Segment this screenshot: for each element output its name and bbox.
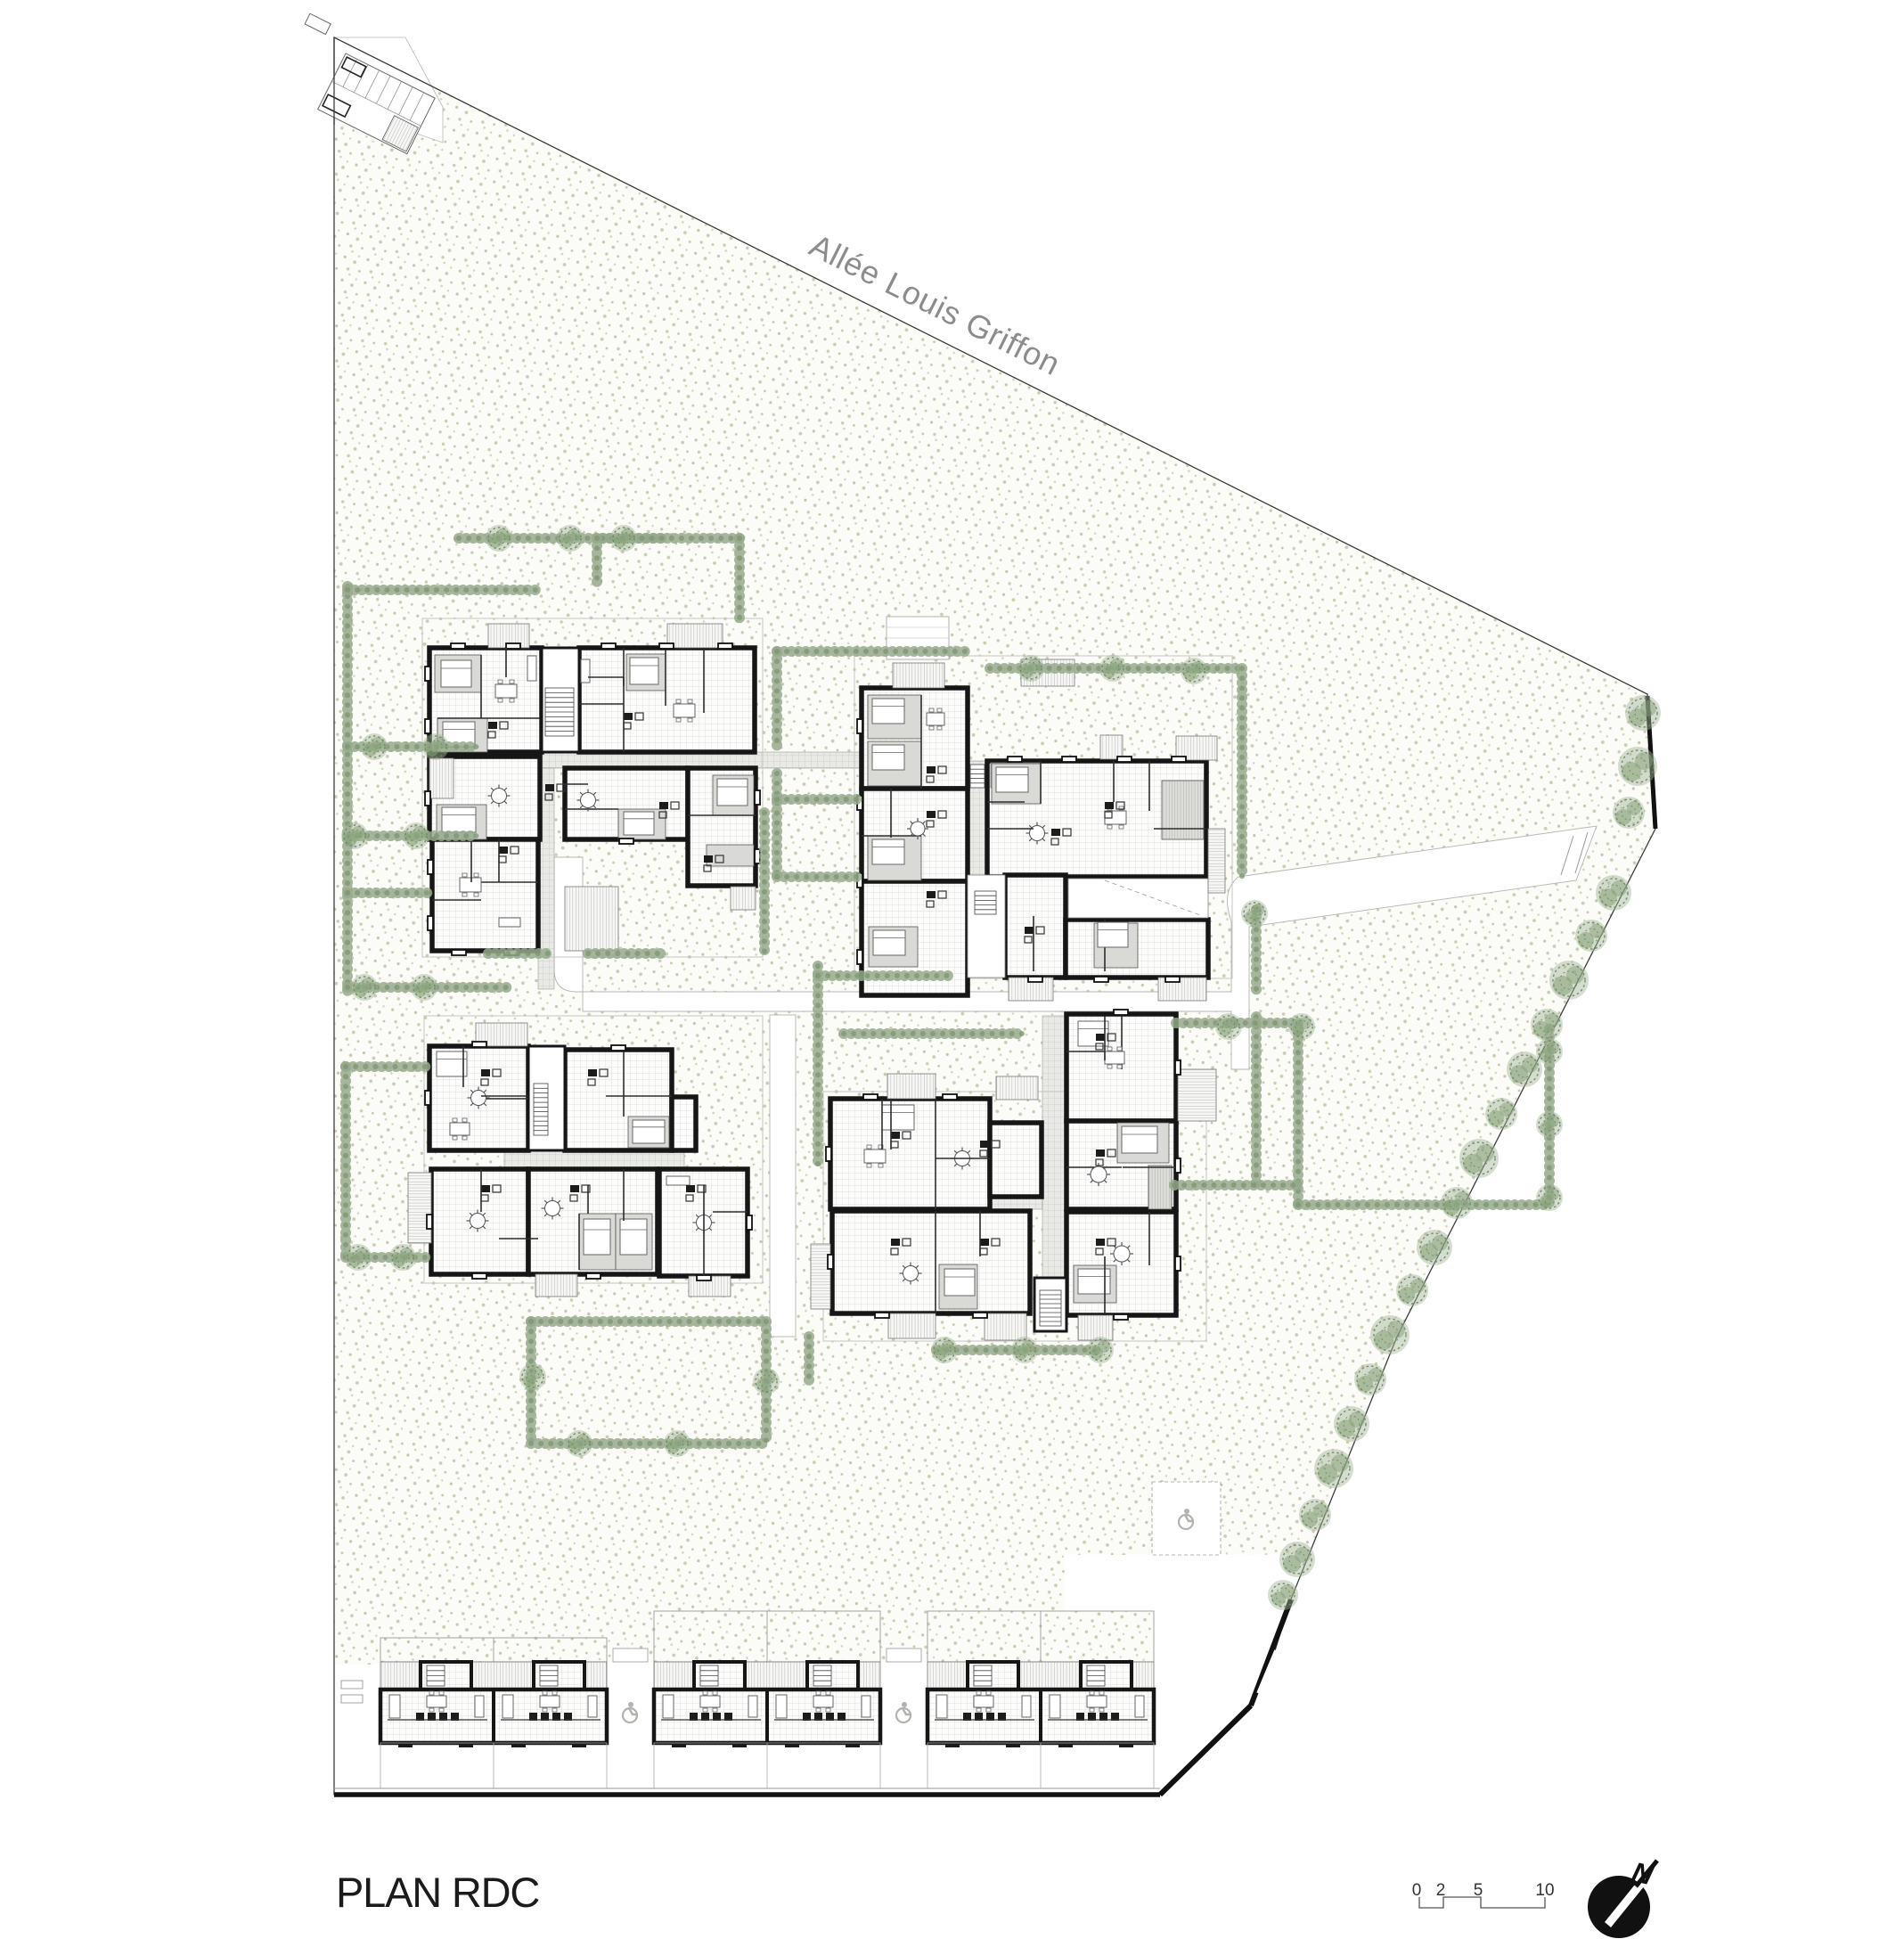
svg-text:PLAN RDC: PLAN RDC — [336, 1869, 539, 1916]
svg-text:N: N — [1629, 1856, 1656, 1892]
svg-text:10: 10 — [1535, 1881, 1554, 1900]
svg-text:5: 5 — [1474, 1881, 1483, 1900]
svg-text:2: 2 — [1436, 1881, 1446, 1900]
svg-text:0: 0 — [1412, 1881, 1422, 1900]
